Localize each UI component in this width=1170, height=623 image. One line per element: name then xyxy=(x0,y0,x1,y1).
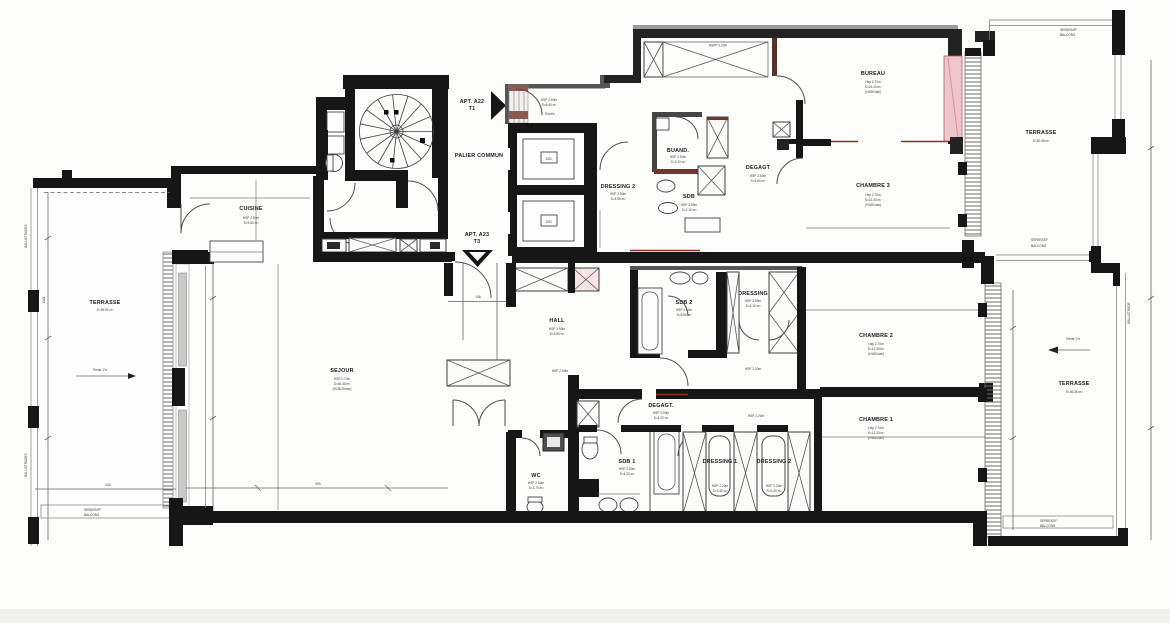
svg-text:(H180:hab): (H180:hab) xyxy=(865,90,881,94)
svg-text:S=6.50 m²: S=6.50 m² xyxy=(542,103,557,107)
svg-text:HSP 2.20m: HSP 2.20m xyxy=(712,484,729,488)
svg-text:S=5.80 m²: S=5.80 m² xyxy=(677,313,692,317)
svg-text:S=2.10 m²: S=2.10 m² xyxy=(682,208,697,212)
svg-text:HSP 2.50m: HSP 2.50m xyxy=(610,192,627,196)
svg-text:APT. A22: APT. A22 xyxy=(460,99,484,105)
svg-text:S=4.50 m²: S=4.50 m² xyxy=(611,197,626,201)
svg-text:S=3.40 m²: S=3.40 m² xyxy=(713,489,728,493)
svg-text:HSP 2.20m: HSP 2.20m xyxy=(745,367,762,371)
svg-text:S=4.20 m²: S=4.20 m² xyxy=(654,416,669,420)
svg-text:S=46.56 m²: S=46.56 m² xyxy=(1066,390,1083,394)
svg-text:CHAMBRE 3: CHAMBRE 3 xyxy=(856,183,890,189)
svg-text:S=50.06 m²: S=50.06 m² xyxy=(1033,139,1050,143)
svg-text:CUISINE: CUISINE xyxy=(239,206,262,212)
svg-text:S=3.40 m²: S=3.40 m² xyxy=(767,489,782,493)
svg-text:HALL: HALL xyxy=(549,318,565,324)
svg-text:HSPP 2.20m: HSPP 2.20m xyxy=(709,44,728,48)
svg-text:HSP 2.50m: HSP 2.50m xyxy=(528,481,545,485)
svg-text:TERRASSE: TERRASSE xyxy=(90,300,121,306)
svg-text:BALUSTRADE: BALUSTRADE xyxy=(1127,302,1131,323)
svg-text:S=3.10 m²: S=3.10 m² xyxy=(671,160,686,164)
svg-text:245: 245 xyxy=(105,483,111,487)
svg-text:TERRASSE: TERRASSE xyxy=(1059,381,1090,387)
svg-text:S=59.91 m²: S=59.91 m² xyxy=(97,308,114,312)
svg-text:(H180:Smax): (H180:Smax) xyxy=(333,387,352,391)
svg-text:BALCONS: BALCONS xyxy=(1031,244,1046,248)
svg-text:SEPARATIF: SEPARATIF xyxy=(1031,238,1048,242)
svg-text:(H180:hab): (H180:hab) xyxy=(868,352,884,356)
svg-text:Hsp 2.70m: Hsp 2.70m xyxy=(868,426,884,430)
svg-text:BALUSTRADES: BALUSTRADES xyxy=(24,453,28,476)
svg-text:CHAMBRE 1: CHAMBRE 1 xyxy=(859,417,893,423)
svg-text:HSP 2.20m: HSP 2.20m xyxy=(748,414,765,418)
svg-text:WC: WC xyxy=(531,473,540,479)
svg-text:S=13.30 m²: S=13.30 m² xyxy=(865,198,882,202)
svg-text:BUREAU: BUREAU xyxy=(861,71,885,77)
svg-text:T1: T1 xyxy=(469,106,476,112)
svg-text:Pente 1%: Pente 1% xyxy=(93,368,107,372)
svg-text:SDB: SDB xyxy=(683,194,695,200)
svg-text:DEGAGT.: DEGAGT. xyxy=(648,403,674,409)
svg-text:PALIER COMMUN: PALIER COMMUN xyxy=(455,153,503,159)
svg-text:HSP 2.50m: HSP 2.50m xyxy=(745,299,762,303)
svg-text:TERRASSE: TERRASSE xyxy=(1026,130,1057,136)
svg-text:HSP 2.50m: HSP 2.50m xyxy=(681,203,698,207)
svg-text:SEPARATIF: SEPARATIF xyxy=(1060,28,1077,32)
svg-text:DRESSING 2: DRESSING 2 xyxy=(601,184,636,190)
svg-text:ASC: ASC xyxy=(546,157,553,161)
svg-text:DEGAGT: DEGAGT xyxy=(746,165,771,171)
svg-text:BALCONS: BALCONS xyxy=(1060,33,1075,37)
svg-text:(H180:hab): (H180:hab) xyxy=(865,203,881,207)
svg-text:HSP 2.50m: HSP 2.50m xyxy=(619,467,636,471)
svg-text:HSP 2.50m: HSP 2.50m xyxy=(676,308,693,312)
svg-text:S=4.10 m²: S=4.10 m² xyxy=(746,304,761,308)
svg-text:Pente 1%: Pente 1% xyxy=(1066,337,1080,341)
svg-text:BALCONS: BALCONS xyxy=(84,513,99,517)
svg-text:CHAMBRE 2: CHAMBRE 2 xyxy=(859,333,893,339)
svg-text:T3: T3 xyxy=(474,239,481,245)
svg-text:ASC: ASC xyxy=(546,220,553,224)
svg-text:Hsp 2.70m: Hsp 2.70m xyxy=(865,80,881,84)
svg-text:SDB 2: SDB 2 xyxy=(676,300,693,306)
svg-text:S=1.70 m²: S=1.70 m² xyxy=(529,486,544,490)
svg-text:HSP 2.20m: HSP 2.20m xyxy=(766,484,783,488)
svg-text:HSP 2.50m: HSP 2.50m xyxy=(243,216,260,220)
svg-text:S=12.30 m²: S=12.30 m² xyxy=(868,431,885,435)
svg-text:HSP 2.50m: HSP 2.50m xyxy=(552,369,569,373)
svg-text:BALUSTRADES: BALUSTRADES xyxy=(24,224,28,247)
svg-text:DRESSING 2: DRESSING 2 xyxy=(757,459,792,465)
svg-text:HSP 2.50m: HSP 2.50m xyxy=(653,411,670,415)
svg-text:1161: 1161 xyxy=(42,296,46,303)
svg-text:SEPARATIF: SEPARATIF xyxy=(84,508,101,512)
svg-text:APT. A23: APT. A23 xyxy=(465,232,489,238)
svg-text:DRESSING 1: DRESSING 1 xyxy=(703,459,738,465)
svg-text:590: 590 xyxy=(315,482,321,486)
svg-text:SDB 1: SDB 1 xyxy=(619,459,636,465)
svg-text:S=12.30 m²: S=12.30 m² xyxy=(868,347,885,351)
svg-text:BALCONS: BALCONS xyxy=(1040,524,1055,528)
svg-text:HSP 2.50m: HSP 2.50m xyxy=(549,327,566,331)
svg-text:DRESSING: DRESSING xyxy=(738,291,768,297)
svg-text:S=4.60 m²: S=4.60 m² xyxy=(751,179,766,183)
svg-text:146: 146 xyxy=(475,295,481,299)
svg-text:SEJOUR: SEJOUR xyxy=(330,368,353,374)
svg-text:SEPARATIF: SEPARATIF xyxy=(1040,519,1057,523)
svg-text:S=46.30 m²: S=46.30 m² xyxy=(334,382,351,386)
svg-text:S=9.90 m²: S=9.90 m² xyxy=(550,332,565,336)
svg-text:HSP 2.50m: HSP 2.50m xyxy=(750,174,767,178)
svg-text:Entrée: Entrée xyxy=(545,112,555,116)
svg-text:HSP 2.70m: HSP 2.70m xyxy=(334,377,351,381)
svg-text:Hsp 2.70m: Hsp 2.70m xyxy=(865,193,881,197)
svg-text:S=4.30 m²: S=4.30 m² xyxy=(620,472,635,476)
svg-text:HSP 2.50m: HSP 2.50m xyxy=(541,98,558,102)
svg-text:BUAND.: BUAND. xyxy=(667,148,689,154)
svg-text:Hsp 2.70m: Hsp 2.70m xyxy=(868,342,884,346)
svg-text:HSP 2.50m: HSP 2.50m xyxy=(670,155,687,159)
svg-text:S=19.10 m²: S=19.10 m² xyxy=(865,85,882,89)
svg-text:(H180:hab): (H180:hab) xyxy=(868,436,884,440)
